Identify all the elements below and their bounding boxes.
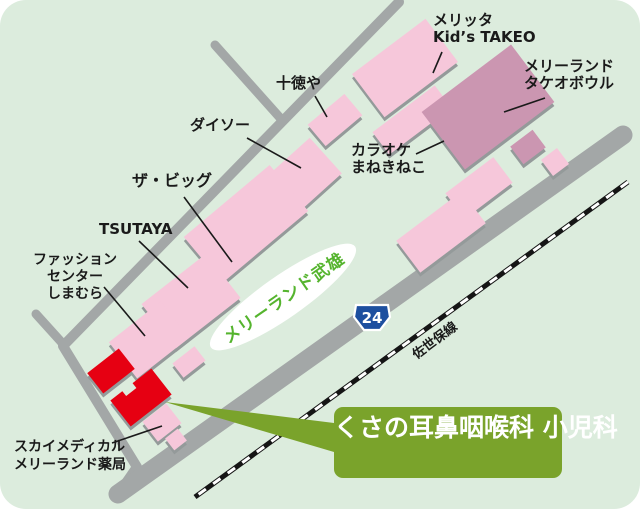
- label-pharmacy-line2: メリーランド薬局: [14, 456, 126, 474]
- building-jutokuya: [308, 94, 363, 146]
- leader-lines: [104, 52, 545, 443]
- area-ellipse-label: メリーランド武雄: [194, 229, 372, 364]
- leader-tsutaya: [139, 241, 188, 288]
- building-shimamura: [109, 302, 189, 379]
- route24-shield: 24: [354, 305, 390, 330]
- building-clinic-main: [110, 368, 171, 426]
- label-karaoke-line2: まねきねこ: [351, 159, 426, 176]
- west-stub-road: [36, 314, 64, 345]
- clinic-callout: くさの耳鼻咽喉科 小児科: [334, 407, 562, 478]
- label-shimamura-line1: ファッション: [20, 252, 130, 269]
- label-shimamura-line3: しまむら: [20, 286, 130, 303]
- label-melitta-line1: メリッタ: [433, 12, 536, 29]
- building-karaoke-a: [445, 157, 512, 219]
- building-clinic-north: [87, 348, 135, 393]
- building-pharmacy: [142, 403, 181, 441]
- leader-melitta: [433, 52, 442, 73]
- label-tsutaya: TSUTAYA: [99, 221, 173, 238]
- label-pharmacy-line1: スカイメディカル: [14, 438, 126, 456]
- label-takeo-bowl-line1: メリーランド: [524, 58, 614, 75]
- building-karaoke-b: [396, 191, 486, 272]
- label-karaoke-line1: カラオケ: [351, 142, 426, 159]
- clinic-callout-line1: くさの耳鼻咽喉科: [334, 413, 534, 442]
- label-pharmacy: スカイメディカル メリーランド薬局: [14, 438, 126, 474]
- building-daiso: [262, 138, 342, 216]
- leader-bowl: [504, 98, 545, 112]
- building-karaoke-c: [406, 229, 444, 266]
- label-takeo-bowl-line2: タケオボウル: [524, 75, 614, 92]
- label-the-big: ザ・ビッグ: [132, 172, 212, 189]
- railway-label: 佐世保線: [408, 316, 461, 362]
- building-clinic-notch: [121, 381, 137, 396]
- label-shimamura-line2: センター: [20, 269, 130, 286]
- label-daiso: ダイソー: [190, 117, 250, 134]
- label-karaoke: カラオケ まねきねこ: [351, 142, 426, 176]
- route24-shield-shape: [354, 305, 390, 330]
- clinic-callout-line2: 小児科: [543, 413, 618, 442]
- building-small-pink: [541, 148, 569, 176]
- label-jutokuya: 十徳や: [276, 75, 321, 92]
- leader-daiso: [247, 138, 301, 168]
- map-canvas: 24 メリッタ Kid’s TAKEO メリーランド タケオボウル カラオケ ま…: [0, 0, 640, 509]
- label-melitta-line2: Kid’s TAKEO: [433, 29, 536, 46]
- leader-big: [184, 197, 232, 262]
- callout-wedge: [165, 402, 334, 452]
- north-branch-road: [215, 45, 282, 120]
- label-shimamura: ファッション センター しまむら: [20, 252, 130, 303]
- route24-shield-number: 24: [362, 309, 383, 327]
- leader-jutokuya: [315, 96, 327, 117]
- label-takeo-bowl: メリーランド タケオボウル: [524, 58, 614, 92]
- building-takeo-bowl-annex: [510, 130, 546, 164]
- label-melitta: メリッタ Kid’s TAKEO: [433, 12, 536, 46]
- building-pharmacy-annex: [165, 429, 187, 451]
